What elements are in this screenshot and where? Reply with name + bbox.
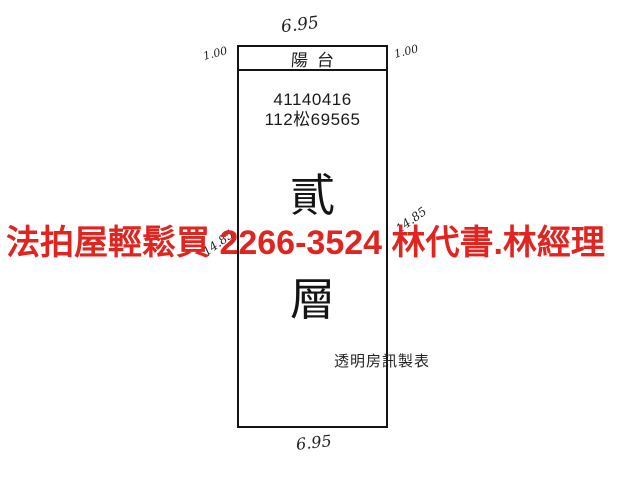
balcony-section: 陽台 [239, 47, 386, 71]
case-numbers: 41140416 112松69565 [239, 90, 386, 130]
dimension-top-width: 6.95 [280, 13, 320, 37]
case-number-line2: 112松69565 [239, 110, 386, 130]
floor-label-char-2: 層 [239, 277, 386, 322]
balcony-label: 陽台 [281, 46, 344, 71]
dimension-right-balcony-depth: 1.00 [393, 42, 420, 61]
dimension-bottom-width: 6.95 [295, 431, 332, 454]
red-ad-overlay-text: 法拍屋輕鬆買 2266-3524 林代書.林經理 [6, 215, 640, 264]
maker-label: 透明房訊製表 [334, 350, 430, 371]
floor-plan-sheet: 陽台 41140416 112松69565 貳 層 透明房訊製表 6.95 6.… [0, 0, 640, 480]
case-number-line1: 41140416 [239, 90, 386, 110]
dimension-left-balcony-depth: 1.00 [202, 44, 229, 63]
floor-label-char-1: 貳 [239, 173, 386, 218]
